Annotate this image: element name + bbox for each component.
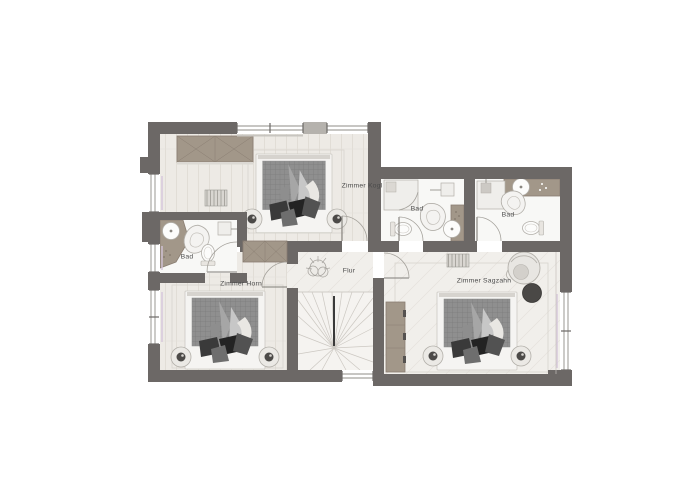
entry-door-bottom <box>342 370 373 382</box>
window-left-1 <box>148 174 160 212</box>
horn-wardrobe <box>243 241 287 262</box>
room-label-zimmer-sagzahn: Zimmer Sagzahn <box>457 278 512 285</box>
room-label-bad-rechts: Bad <box>502 212 515 219</box>
room-label-bad-links: Bad <box>181 254 194 261</box>
room-label-bad-mitte: Bad <box>411 206 424 213</box>
window-top-1 <box>237 122 303 134</box>
window-right <box>560 292 572 370</box>
floorplan-svg <box>0 0 700 500</box>
horn-furniture <box>171 291 279 369</box>
room-label-zimmer-kogl: Zimmer Kogl <box>342 183 383 190</box>
window-left-3 <box>148 290 160 344</box>
shower <box>477 179 505 209</box>
sagzahn-wardrobe <box>386 302 406 372</box>
floorplan-page: Zimmer Kogl Bad Bad Bad Zimmer Horn Flur… <box>0 0 700 500</box>
window-top-2 <box>327 122 368 134</box>
room-label-flur: Flur <box>343 268 356 275</box>
room-label-zimmer-horn: Zimmer Horn <box>220 281 262 288</box>
wardrobe <box>177 136 253 165</box>
window-left-2 <box>148 244 160 272</box>
radiator <box>447 254 469 267</box>
side-table-dark <box>523 284 542 303</box>
radiator <box>205 190 227 206</box>
